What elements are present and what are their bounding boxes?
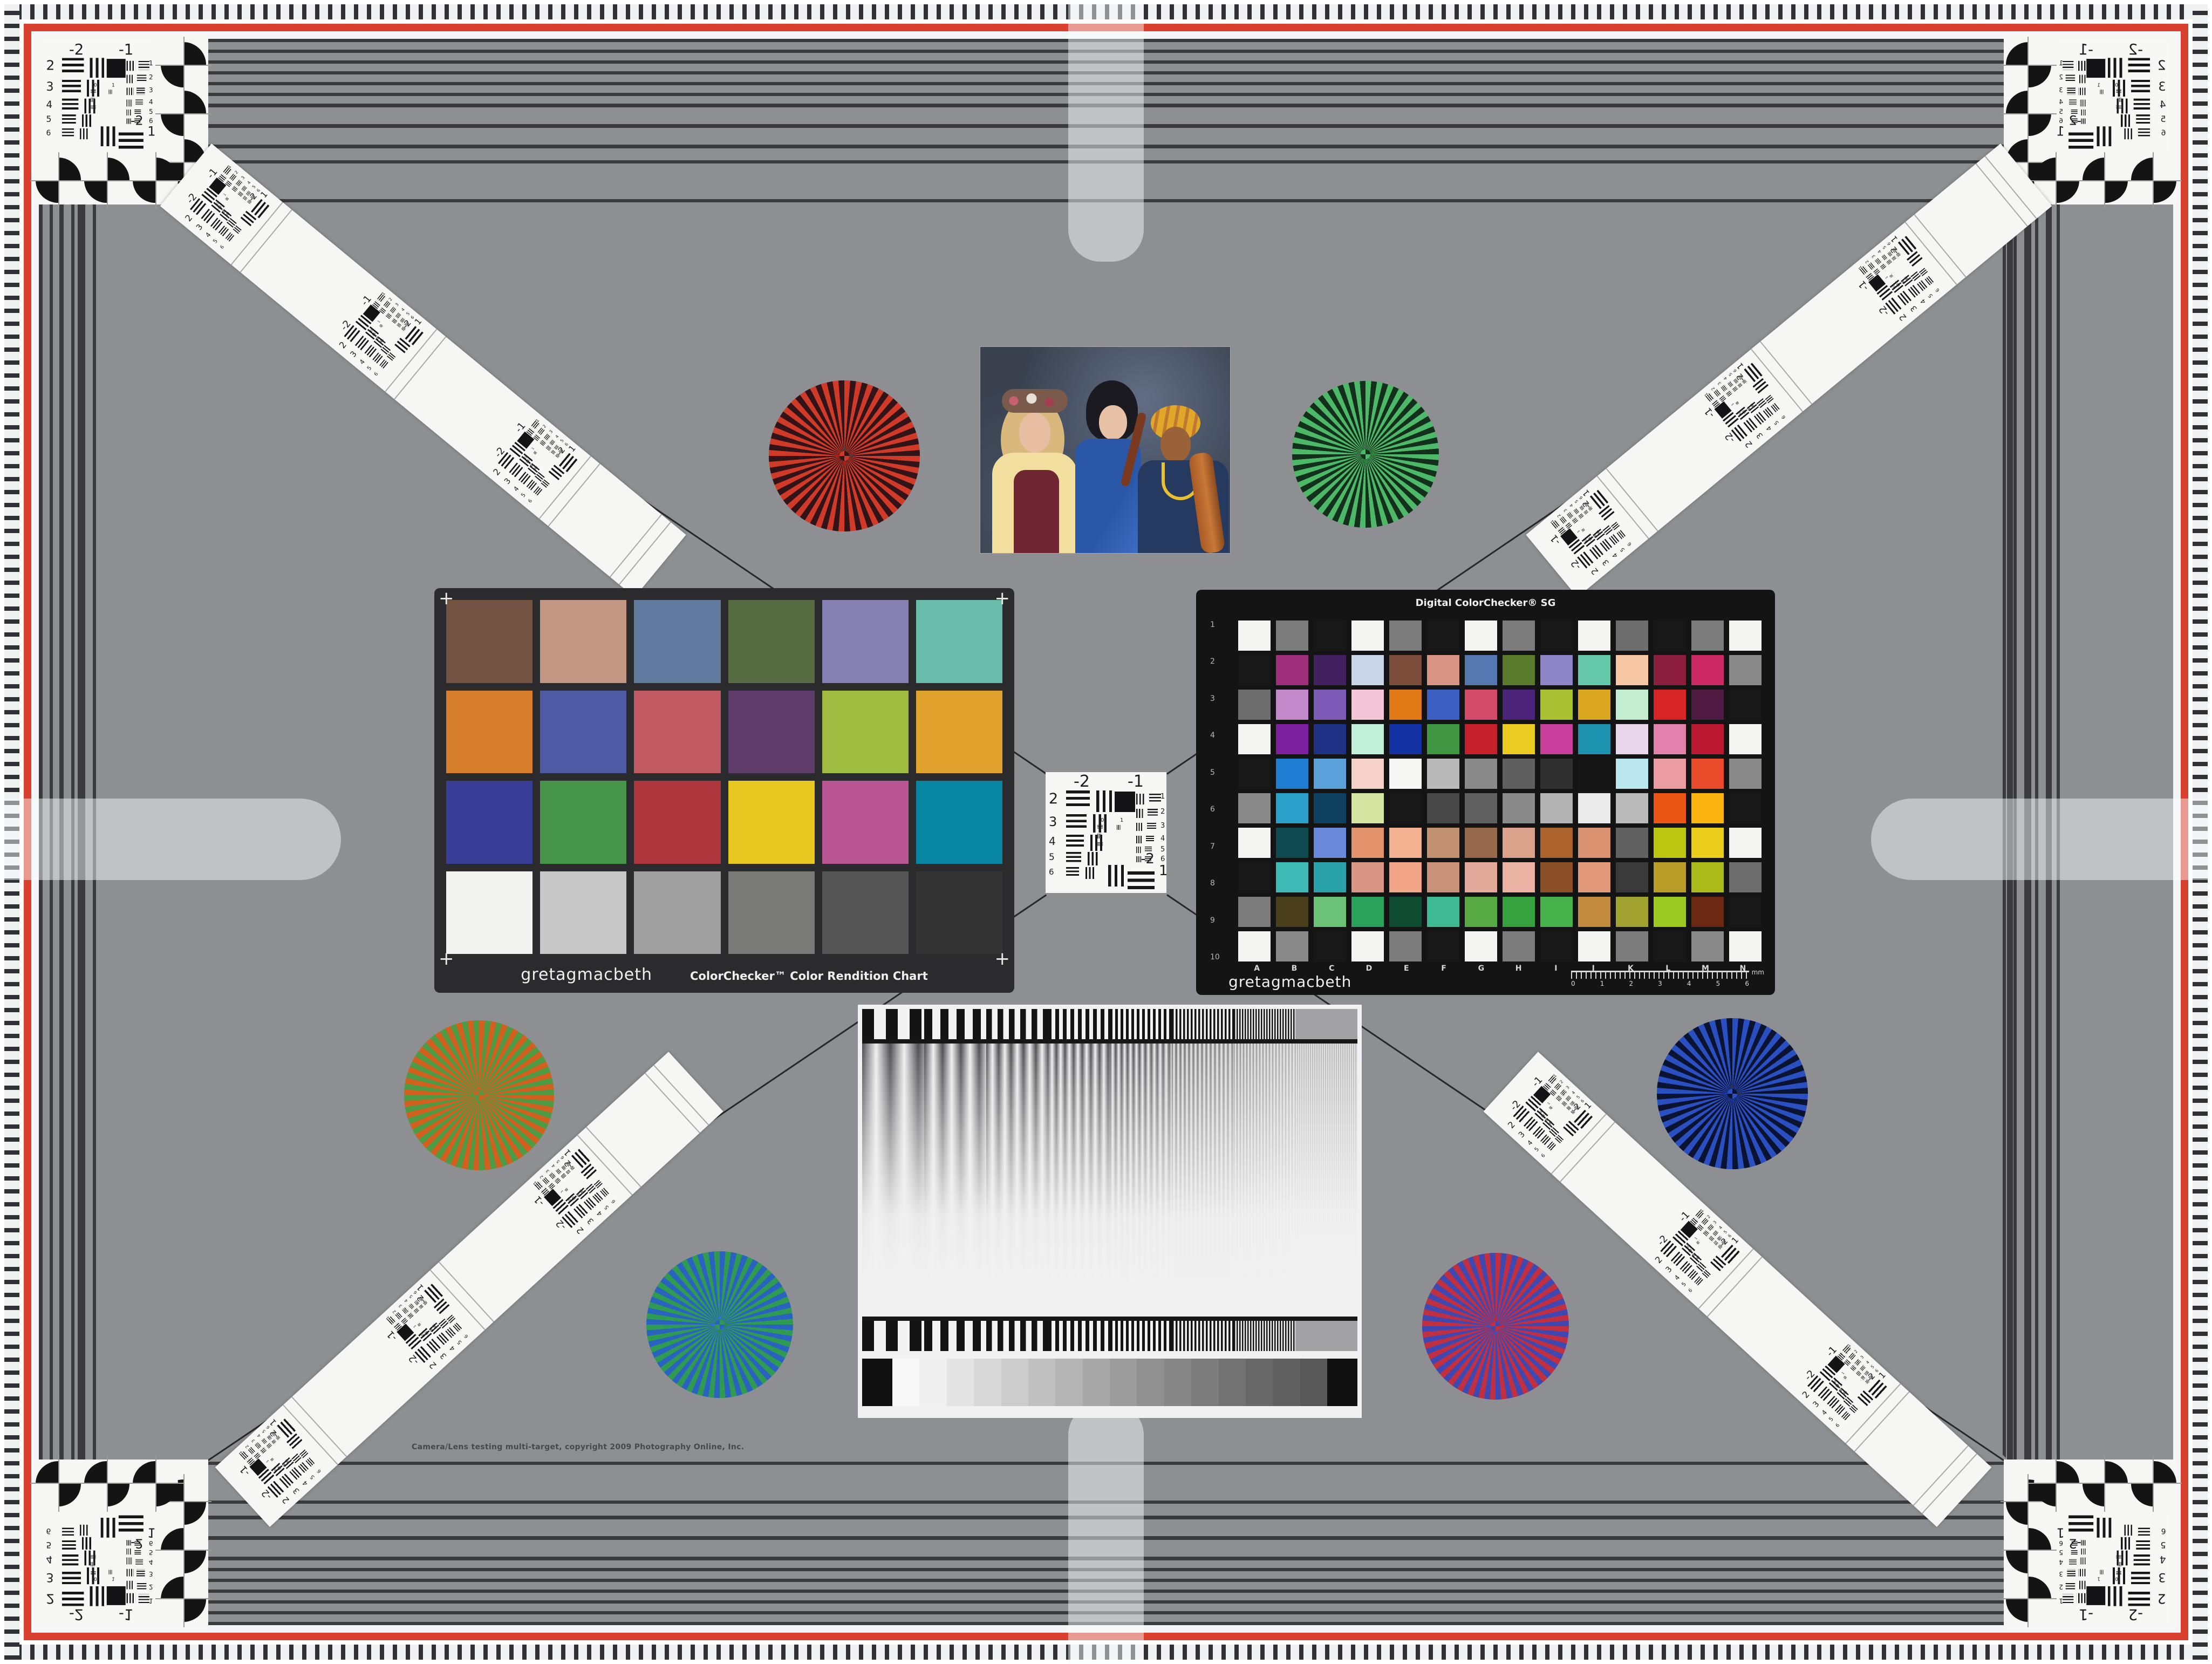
sweep-segment [862, 1321, 924, 1351]
bar-group [1146, 836, 1154, 842]
sg-color-patch [1238, 897, 1271, 927]
bar-group [1097, 834, 1102, 838]
sg-color-patch [1503, 862, 1535, 892]
sg-color-patch [1351, 620, 1384, 651]
res-label: 0 [94, 1576, 97, 1581]
sg-row-label: 6 [1210, 805, 1220, 814]
sg-color-patch [1314, 690, 1346, 720]
bar-group [62, 1588, 84, 1606]
bar-group [549, 440, 555, 446]
bar-group [80, 1525, 90, 1536]
bar-group [542, 1177, 550, 1185]
res-label: 5 [46, 1539, 52, 1549]
checker-circle [2083, 158, 2128, 203]
res-label: -1 [119, 41, 134, 58]
photo-center-face [1099, 405, 1127, 440]
sg-color-patch [1729, 655, 1762, 685]
sg-color-patch [1351, 724, 1384, 754]
res-label: -2 [2128, 41, 2143, 58]
bar-group [62, 128, 74, 138]
res-label: 5 [1927, 292, 1934, 299]
res-label: 5 [1723, 1230, 1728, 1235]
sg-color-patch [1654, 793, 1686, 823]
bar-group [417, 1322, 421, 1326]
res-label: 3 [1811, 1400, 1821, 1409]
res-label: -2 [131, 1536, 144, 1551]
sg-color-patch [1427, 897, 1459, 927]
bar-group [241, 186, 247, 192]
res-label: 3 [1717, 381, 1722, 386]
bar-group [2136, 114, 2150, 126]
bar-group [138, 1594, 149, 1603]
sg-color-patch [1616, 620, 1648, 651]
bar-group [1882, 254, 1888, 261]
bar-group [407, 1312, 414, 1319]
corner-target-bl: -2-12345612345601-21 [35, 1460, 208, 1629]
res-label: 4 [1610, 551, 1619, 560]
res-label: 1 [1160, 793, 1165, 801]
sg-color-patch [1616, 897, 1648, 927]
checker-circle [2006, 91, 2051, 136]
res-label: 3 [1563, 508, 1568, 513]
strip-separator [645, 1073, 700, 1133]
sweep-segment [1110, 1321, 1172, 1351]
res-label: 0 [2115, 1576, 2118, 1581]
wedge-step [1300, 1359, 1327, 1406]
sg-color-patch [1578, 759, 1610, 789]
sg-color-patch [1465, 931, 1497, 961]
res-label: 1 [560, 1189, 564, 1193]
sg-color-patch [1578, 897, 1610, 927]
bar-group [62, 1569, 81, 1584]
sg-color-patch [1276, 793, 1308, 823]
sg-color-patch [1578, 724, 1610, 754]
sg-color-patch [1238, 620, 1271, 651]
bar-group [1066, 852, 1081, 864]
sg-color-patch [1616, 793, 1648, 823]
wedge-step [1055, 1359, 1082, 1406]
res-label: 3 [585, 1216, 596, 1226]
color-patch [634, 691, 720, 774]
sg-color-patch [1578, 862, 1610, 892]
res-label: 5 [1160, 845, 1165, 854]
bar-group [108, 1570, 112, 1574]
res-label: 6 [219, 244, 226, 250]
ruler-number: 3 [1658, 980, 1662, 987]
bar-group [137, 75, 146, 83]
sg-color-patch [1691, 828, 1724, 858]
res-label: 3 [545, 1168, 550, 1174]
sg-color-patch [1351, 828, 1384, 858]
bar-group [379, 324, 383, 328]
res-label: 1 [2059, 60, 2063, 67]
bar-group [2134, 1552, 2150, 1565]
bar-group [1578, 513, 1584, 519]
res-label: 3 [46, 80, 54, 94]
bar-group [1066, 867, 1079, 877]
sg-color-patch [1691, 620, 1724, 651]
res-label: 5 [1533, 1146, 1540, 1153]
res-label: -2 [69, 41, 84, 58]
sg-color-patch [1238, 724, 1271, 754]
bar-group [2134, 99, 2150, 112]
color-patch [916, 781, 1002, 864]
bar-group [2063, 1594, 2073, 1603]
checker-circle [161, 1577, 206, 1622]
res-label: 2 [46, 58, 55, 73]
bar-group [1097, 825, 1103, 829]
bar-group [1149, 794, 1161, 803]
res-label: -2 [1074, 772, 1090, 791]
bar-group [379, 307, 387, 315]
res-label: 2 [1653, 1254, 1664, 1265]
res-label: 6 [1834, 1422, 1841, 1429]
bar-group [226, 233, 235, 242]
res-label: 6 [149, 1539, 153, 1547]
center-resolution-target: -2-12345612345601-21 [1046, 772, 1166, 893]
res-label: 1 [1694, 1237, 1698, 1240]
res-label: 4 [1049, 835, 1056, 848]
bar-group [62, 58, 84, 75]
res-label: -1 [2079, 1606, 2094, 1623]
bar-group [1147, 823, 1156, 830]
bar-group [1560, 1089, 1567, 1096]
bar-group [2079, 1568, 2086, 1576]
star-center-dot [474, 1090, 484, 1100]
res-label: 3 [1517, 1130, 1527, 1140]
bar-group [255, 1442, 262, 1449]
sg-color-patch [1314, 931, 1346, 961]
res-label: 1 [377, 320, 381, 324]
bar-group [386, 312, 392, 319]
sg-color-patch [1389, 620, 1422, 651]
bar-group [2117, 1562, 2121, 1566]
res-label: 2 [2059, 1583, 2063, 1590]
sg-color-patch [1314, 759, 1346, 789]
sg-color-patch [1276, 759, 1308, 789]
star-center-dot [1491, 1321, 1500, 1331]
res-label: 1 [1159, 863, 1168, 879]
res-label: 5 [1828, 1416, 1835, 1423]
res-label: 2 [491, 467, 503, 478]
res-label: 6 [610, 1198, 617, 1205]
bar-group [395, 1312, 402, 1320]
bar-group [540, 440, 546, 446]
color-patch [822, 600, 909, 683]
color-patch [728, 781, 815, 864]
bar-group [270, 1457, 274, 1461]
sg-row-label: 7 [1210, 842, 1220, 851]
sg-color-patch [1503, 897, 1535, 927]
star-center-dot [839, 451, 849, 461]
bar-group [2067, 1570, 2076, 1577]
sg-color-patch [1616, 655, 1648, 685]
color-patch [916, 871, 1002, 954]
res-label: 1 [112, 83, 115, 88]
sg-color-patch [1503, 793, 1535, 823]
sg-color-patch [1276, 620, 1308, 651]
star-center-dot [715, 1320, 725, 1329]
sg-col-label: D [1350, 964, 1388, 973]
siemens-star-red [769, 380, 920, 531]
strip-separator [1913, 1445, 1969, 1506]
sg-row-labels: 12345678910 [1210, 620, 1220, 961]
sg-color-patch [1691, 897, 1724, 927]
sweep-divider [862, 1317, 1357, 1321]
res-label: 6 [1160, 855, 1165, 863]
sg-color-patch [1578, 690, 1610, 720]
res-label: 6 [1934, 287, 1941, 293]
bar-group [2116, 1554, 2121, 1558]
bar-group [548, 1182, 555, 1190]
sweep-segment [862, 1009, 924, 1039]
cc-title: ColorChecker™ Color Rendition Chart [690, 970, 928, 983]
color-patch [446, 871, 532, 954]
res-label: -2 [2128, 1606, 2143, 1623]
res-label: 6 [527, 498, 534, 504]
bar-group [2069, 100, 2077, 106]
sg-row-label: 4 [1210, 731, 1220, 740]
sg-color-patch [1314, 828, 1346, 858]
res-label: 5 [46, 114, 52, 124]
sg-color-patch [1616, 931, 1648, 961]
res-label: 5 [309, 1474, 316, 1481]
bar-group [2138, 1526, 2150, 1536]
sweep-segment [924, 1321, 986, 1351]
cc-corner-mark: + [995, 951, 1011, 967]
color-patch [540, 871, 626, 954]
res-label: 6 [373, 371, 379, 377]
bar-group [1697, 1224, 1704, 1231]
bar-group [2116, 106, 2121, 110]
bar-group [1566, 1095, 1572, 1101]
sg-color-patch [1314, 655, 1346, 685]
sg-color-patch [1503, 759, 1535, 789]
cc-brand: gretagmacbeth [521, 965, 652, 984]
bar-group [127, 1558, 133, 1564]
bar-group [135, 1558, 143, 1564]
res-label: 4 [1718, 1225, 1724, 1231]
sg-color-patch [1729, 724, 1762, 754]
sweep-segment [924, 1009, 986, 1039]
sg-color-patch [1691, 690, 1724, 720]
gray-bar-left [0, 799, 341, 880]
bar-group [62, 114, 76, 126]
sg-color-patch [1654, 690, 1686, 720]
res-label: 4 [512, 485, 521, 493]
siemens-star-orange-green [404, 1020, 554, 1170]
sg-color-patch [1540, 620, 1573, 651]
corner-target-br: -2-12345612345601-21 [2004, 1460, 2177, 1629]
res-label: 6 [2161, 1527, 2166, 1536]
sg-color-patch [1503, 620, 1535, 651]
res-label: 2 [575, 1225, 586, 1236]
bar-group [1097, 842, 1103, 847]
bar-group [390, 307, 397, 314]
sg-color-patch [1238, 759, 1271, 789]
checker-circle [2083, 1461, 2128, 1506]
res-label: 3 [1860, 1355, 1865, 1360]
res-label: 4 [149, 99, 153, 106]
res-label: 3 [291, 1486, 302, 1496]
bar-group [1554, 1083, 1562, 1091]
res-label: 5 [408, 1293, 414, 1299]
bar-group [1875, 258, 1882, 265]
bar-group [62, 80, 81, 95]
bar-group [108, 90, 112, 94]
bar-group [1860, 1365, 1866, 1371]
sweep-segment [1110, 1009, 1172, 1039]
bar-group [384, 301, 391, 309]
sg-color-patch [1654, 931, 1686, 961]
res-label: 4 [247, 180, 252, 186]
sg-color-patch [1503, 655, 1535, 685]
bar-group [90, 1586, 107, 1606]
bar-group [248, 1447, 255, 1455]
bar-group [127, 61, 135, 71]
bar-group [138, 61, 149, 70]
checker-circle [2006, 1528, 2051, 1573]
sg-row-label: 9 [1210, 916, 1220, 925]
res-label: 5 [556, 1159, 561, 1164]
res-label: 2 [1897, 312, 1909, 323]
res-label: 2 [1589, 566, 1601, 577]
res-label: -1 [2079, 41, 2094, 58]
res-label: 4 [1723, 376, 1728, 381]
sg-color-patch [1389, 897, 1422, 927]
bar-group [2063, 61, 2073, 70]
res-label: 4 [358, 358, 366, 366]
res-label: -1 [119, 1606, 134, 1623]
photo-left-vest [1014, 470, 1059, 553]
color-patch [540, 781, 626, 864]
checker-circle [36, 1461, 81, 1506]
bar-group [1694, 1276, 1704, 1286]
res-label: 5 [1574, 499, 1579, 504]
res-label: 5 [1049, 852, 1055, 863]
sweep-segment [1295, 1009, 1357, 1039]
sg-color-patch [1578, 793, 1610, 823]
bar-group [1841, 1411, 1851, 1421]
bar-group [2122, 1525, 2132, 1536]
wedge-step [919, 1359, 946, 1406]
color-patch [634, 600, 720, 683]
res-label: 5 [405, 311, 411, 317]
sg-color-patch [1654, 828, 1686, 858]
sg-grid [1238, 620, 1762, 961]
sg-color-patch [1238, 828, 1271, 858]
res-label: 3 [398, 1303, 404, 1308]
color-patch [634, 871, 720, 954]
bar-group [1108, 865, 1127, 886]
res-label: 4 [400, 307, 406, 312]
siemens-star-blue-green [646, 1251, 793, 1398]
bar-group [1709, 1236, 1715, 1242]
sg-color-patch [1578, 620, 1610, 651]
sg-color-patch [1540, 690, 1573, 720]
sg-color-patch [1691, 862, 1724, 892]
bar-group [1886, 259, 1892, 265]
bar-group [1136, 836, 1143, 843]
bar-group [1725, 390, 1732, 397]
res-label: 6 [2059, 118, 2063, 125]
res-label: 5 [559, 438, 565, 444]
res-label: 1 [1731, 403, 1735, 406]
color-patch [446, 600, 532, 683]
sg-brand: gretagmacbeth [1228, 973, 1351, 991]
res-label: 3 [502, 476, 513, 486]
color-patch [728, 600, 815, 683]
bar-group [1702, 1218, 1709, 1226]
sg-col-label: H [1500, 964, 1537, 973]
sg-color-patch [1238, 690, 1271, 720]
photo-left-face [1019, 413, 1050, 453]
bar-group [2128, 1588, 2150, 1606]
sg-color-patch [1729, 620, 1762, 651]
bar-group [2122, 128, 2132, 139]
res-label: 1 [1577, 529, 1581, 533]
res-label: 2 [46, 1591, 55, 1606]
sg-color-patch [1691, 655, 1724, 685]
res-label: 4 [46, 1553, 53, 1565]
bar-group [91, 106, 95, 110]
res-label: 3 [2158, 1570, 2166, 1584]
res-label: 4 [256, 1433, 262, 1438]
wedge-step [974, 1359, 1001, 1406]
gray-step-wedge [862, 1359, 1357, 1406]
res-label: 4 [1919, 297, 1927, 305]
res-label: 3 [149, 87, 153, 94]
sg-col-label: G [1463, 964, 1500, 973]
sg-color-patch [1729, 828, 1762, 858]
bar-group [2079, 1558, 2085, 1564]
bar-group [1136, 823, 1144, 831]
sg-color-patch [1654, 655, 1686, 685]
res-label: 5 [520, 492, 527, 499]
bar-group [2128, 58, 2150, 75]
res-label: 2 [183, 213, 195, 223]
res-label: 4 [1160, 835, 1165, 843]
res-label: 2 [1160, 808, 1165, 816]
res-label: 5 [149, 1548, 153, 1556]
bar-group [119, 1512, 144, 1532]
sg-color-patch [1465, 690, 1497, 720]
sweep-bar-band-bottom [862, 1321, 1357, 1351]
bar-group [1728, 381, 1733, 387]
res-label: 3 [1565, 1085, 1571, 1090]
sg-color-patch [1351, 759, 1384, 789]
sg-row-label: 3 [1210, 694, 1220, 703]
res-label: 3 [1754, 431, 1765, 441]
bar-group [82, 1537, 93, 1550]
bar-group [1561, 1101, 1567, 1107]
copyright-text: Camera/Lens testing multi-target, copyri… [412, 1443, 744, 1451]
res-label: 5 [2059, 108, 2063, 116]
bar-group [400, 1317, 408, 1325]
photo-right-face [1160, 427, 1191, 462]
res-label: 5 [456, 1339, 463, 1346]
bar-group [2131, 80, 2150, 95]
strip-separator [610, 514, 662, 577]
res-label: 1 [531, 447, 535, 451]
ruler-number: 5 [1716, 980, 1721, 987]
sg-color-patch [1465, 724, 1497, 754]
res-label: 1 [2097, 1576, 2100, 1581]
bar-group [136, 87, 145, 94]
checker-circle [2006, 42, 2051, 87]
bar-group [2065, 1581, 2074, 1589]
sg-col-label: F [1425, 964, 1462, 973]
